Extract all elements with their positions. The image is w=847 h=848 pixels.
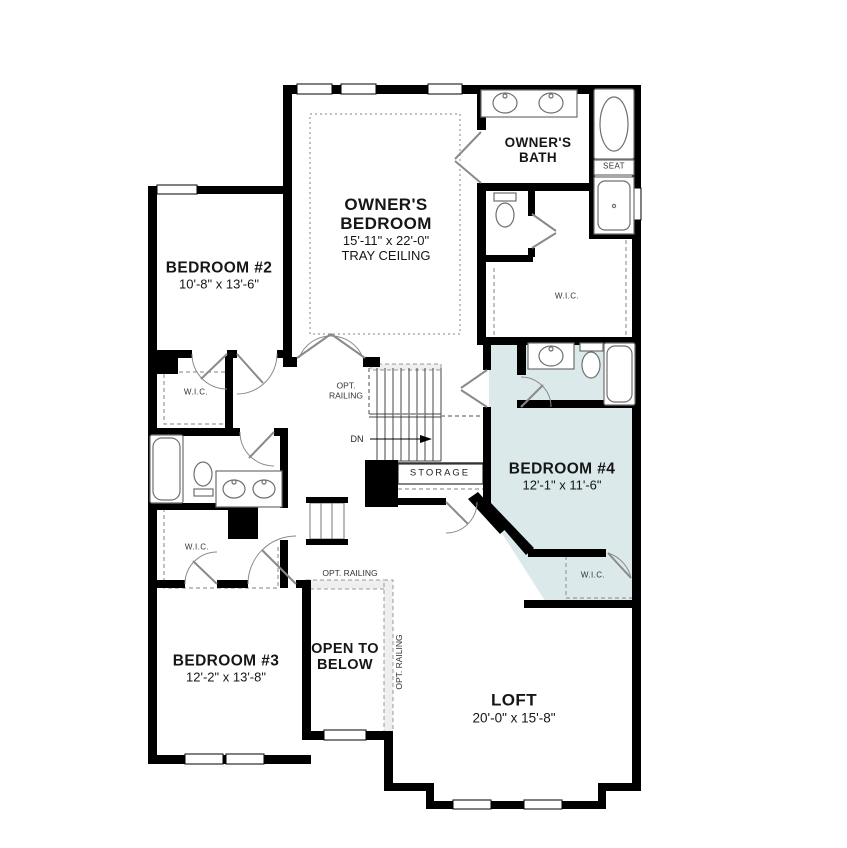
bedroom4-bath-sink-icon: [528, 343, 574, 369]
floor-plan-drawing: [0, 0, 847, 848]
owners-bath-vanity-icon: [481, 90, 577, 117]
owners-bath-label: OWNER'S BATH: [498, 135, 578, 165]
opt-railing-open-below-label: OPT. RAILING: [322, 569, 377, 579]
storage-label: STORAGE: [410, 469, 470, 480]
hall-bath-door: [240, 432, 274, 466]
open-to-below-label: OPEN TO BELOW: [300, 641, 390, 673]
bedroom4-label: BEDROOM #4 12'-1" x 11'-6": [509, 461, 616, 494]
hall-bath-tub-icon: [150, 435, 183, 503]
bedroom3-door: [248, 536, 296, 584]
owners-bath-name: OWNER'S BATH: [498, 135, 578, 165]
bedroom4-dims: 12'-1" x 11'-6": [509, 479, 616, 494]
floor-plan-canvas: OWNER'S BEDROOM 15'-11" x 22'-0" TRAY CE…: [0, 0, 847, 848]
loft-dims: 20'-0" x 15'-8": [472, 710, 555, 725]
linen-closet: [306, 497, 348, 545]
seat-label: SEAT: [603, 163, 625, 172]
bedroom4-bath-tub-icon: [604, 343, 635, 405]
bedroom2-wic-label: W.I.C.: [184, 389, 208, 398]
bedroom3-label: BEDROOM #3 12'-2" x 13'-8": [173, 653, 280, 686]
owners-bedroom-double-door: [297, 334, 365, 358]
bedroom2-name: BEDROOM #2: [166, 260, 273, 277]
opt-railing-stairs-label: OPT. RAILING: [322, 381, 370, 400]
owners-bath-door: [455, 132, 481, 183]
hall-bath-vanity-icon: [216, 471, 282, 507]
bedroom4-name: BEDROOM #4: [509, 461, 616, 478]
owners-wic-label: W.I.C.: [555, 293, 579, 302]
owners-tub-icon: [594, 89, 634, 159]
storage-door: [446, 502, 477, 533]
bedroom3-wic-label: W.I.C.: [185, 544, 209, 553]
bedroom3-name: BEDROOM #3: [173, 653, 280, 670]
bedroom4-door: [461, 370, 487, 407]
hall-bath-toilet-icon: [194, 462, 213, 496]
owners-bedroom-dims: 15'-11" x 22'-0": [316, 234, 456, 249]
water-closet-toilet-icon: [494, 193, 516, 227]
down-label: DN: [351, 434, 364, 444]
loft-name: LOFT: [472, 690, 555, 709]
owners-shower-icon: [594, 177, 634, 234]
bedroom2-door: [237, 354, 277, 394]
bedroom4-wic-label: W.I.C.: [581, 572, 605, 581]
loft-label: LOFT 20'-0" x 15'-8": [472, 690, 555, 725]
bedroom2-label: BEDROOM #2 10'-8" x 13'-6": [166, 260, 273, 293]
water-closet-door: [532, 214, 556, 248]
bedroom3-wic-door: [185, 552, 217, 584]
opt-railing-loft-label: OPT. RAILING: [395, 634, 405, 689]
bedroom3-dims: 12'-2" x 13'-8": [173, 671, 280, 686]
owners-bedroom-label: OWNER'S BEDROOM 15'-11" x 22'-0" TRAY CE…: [316, 195, 456, 263]
open-to-below-name: OPEN TO BELOW: [300, 641, 390, 673]
owners-bedroom-name: OWNER'S BEDROOM: [316, 195, 456, 233]
owners-bedroom-note: TRAY CEILING: [316, 249, 456, 264]
railing-strips: [306, 364, 441, 732]
bedroom2-dims: 10'-8" x 13'-6": [166, 278, 273, 293]
